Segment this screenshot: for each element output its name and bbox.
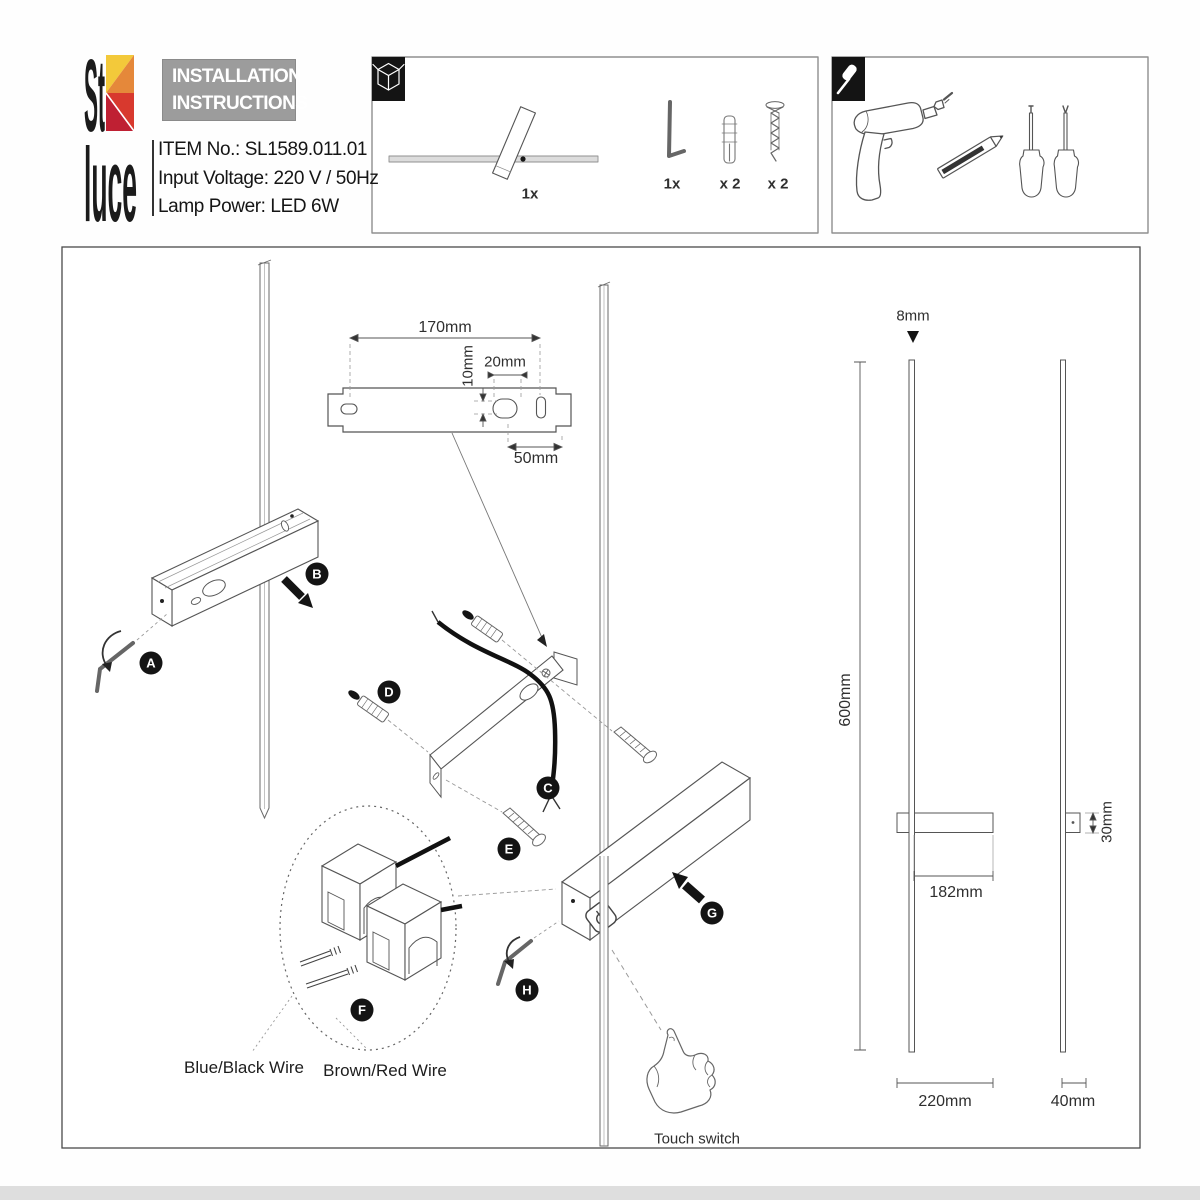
plate-hole-offset-label: 10mm [460, 345, 477, 387]
step-badge-d: D [378, 681, 401, 704]
wall-plug-qty-label: x 2 [720, 176, 741, 193]
brown-red-wire-label: Brown/Red Wire [323, 1061, 447, 1081]
step-badge-a: A [140, 652, 163, 675]
side-width-label: 40mm [1051, 1093, 1095, 1111]
page-edge-shadow [0, 1186, 1200, 1200]
rod-diameter-label: 8mm [896, 308, 929, 325]
height-label: 600mm [837, 673, 855, 726]
body-length-label: 182mm [929, 884, 982, 902]
lamp-power: Lamp Power: LED 6W [158, 193, 388, 222]
lamp-qty-label: 1x [522, 186, 539, 203]
logo-luce-text: luce [84, 127, 137, 244]
product-info: ITEM No.: SL1589.011.01 Input Voltage: 2… [158, 136, 388, 222]
overall-width-label: 220mm [918, 1093, 971, 1111]
front-view-rod [909, 360, 915, 1052]
lamp-rod-right [598, 282, 610, 1146]
plate-edge-dist-label: 50mm [514, 450, 558, 468]
info-divider [152, 140, 154, 216]
title-line-2: INSTRUCTIONS [172, 90, 295, 117]
touch-switch-label: Touch switch [654, 1131, 740, 1148]
hex-key-qty-label: 1x [664, 176, 681, 193]
title-line-1: INSTALLATION [172, 63, 295, 90]
screw-qty-label: x 2 [768, 176, 789, 193]
title-banner: INSTALLATION INSTRUCTIONS [162, 59, 296, 121]
step-badge-c: C [537, 777, 560, 800]
plate-width-label: 170mm [418, 319, 471, 337]
body-depth-label: 30mm [1099, 801, 1116, 843]
step-badge-g: G [701, 902, 724, 925]
item-number: ITEM No.: SL1589.011.01 [158, 136, 388, 165]
blue-black-wire-label: Blue/Black Wire [184, 1058, 304, 1078]
instruction-sheet: St luce [0, 0, 1200, 1200]
wall-plug-drawing [722, 116, 737, 163]
input-voltage: Input Voltage: 220 V / 50Hz [158, 165, 388, 194]
step-badge-h: H [516, 979, 539, 1002]
st-luce-logo: St luce [84, 38, 137, 244]
step-badge-b: B [306, 563, 329, 586]
package-contents-box [372, 57, 818, 233]
step-badge-f: F [351, 999, 374, 1022]
rod-over-body [600, 856, 608, 952]
plate-hole-width-label: 20mm [484, 354, 526, 371]
step-badge-e: E [498, 838, 521, 861]
logo-triangles-icon [106, 55, 134, 131]
tools-box [832, 57, 1148, 233]
side-view-rod [1061, 360, 1066, 1052]
